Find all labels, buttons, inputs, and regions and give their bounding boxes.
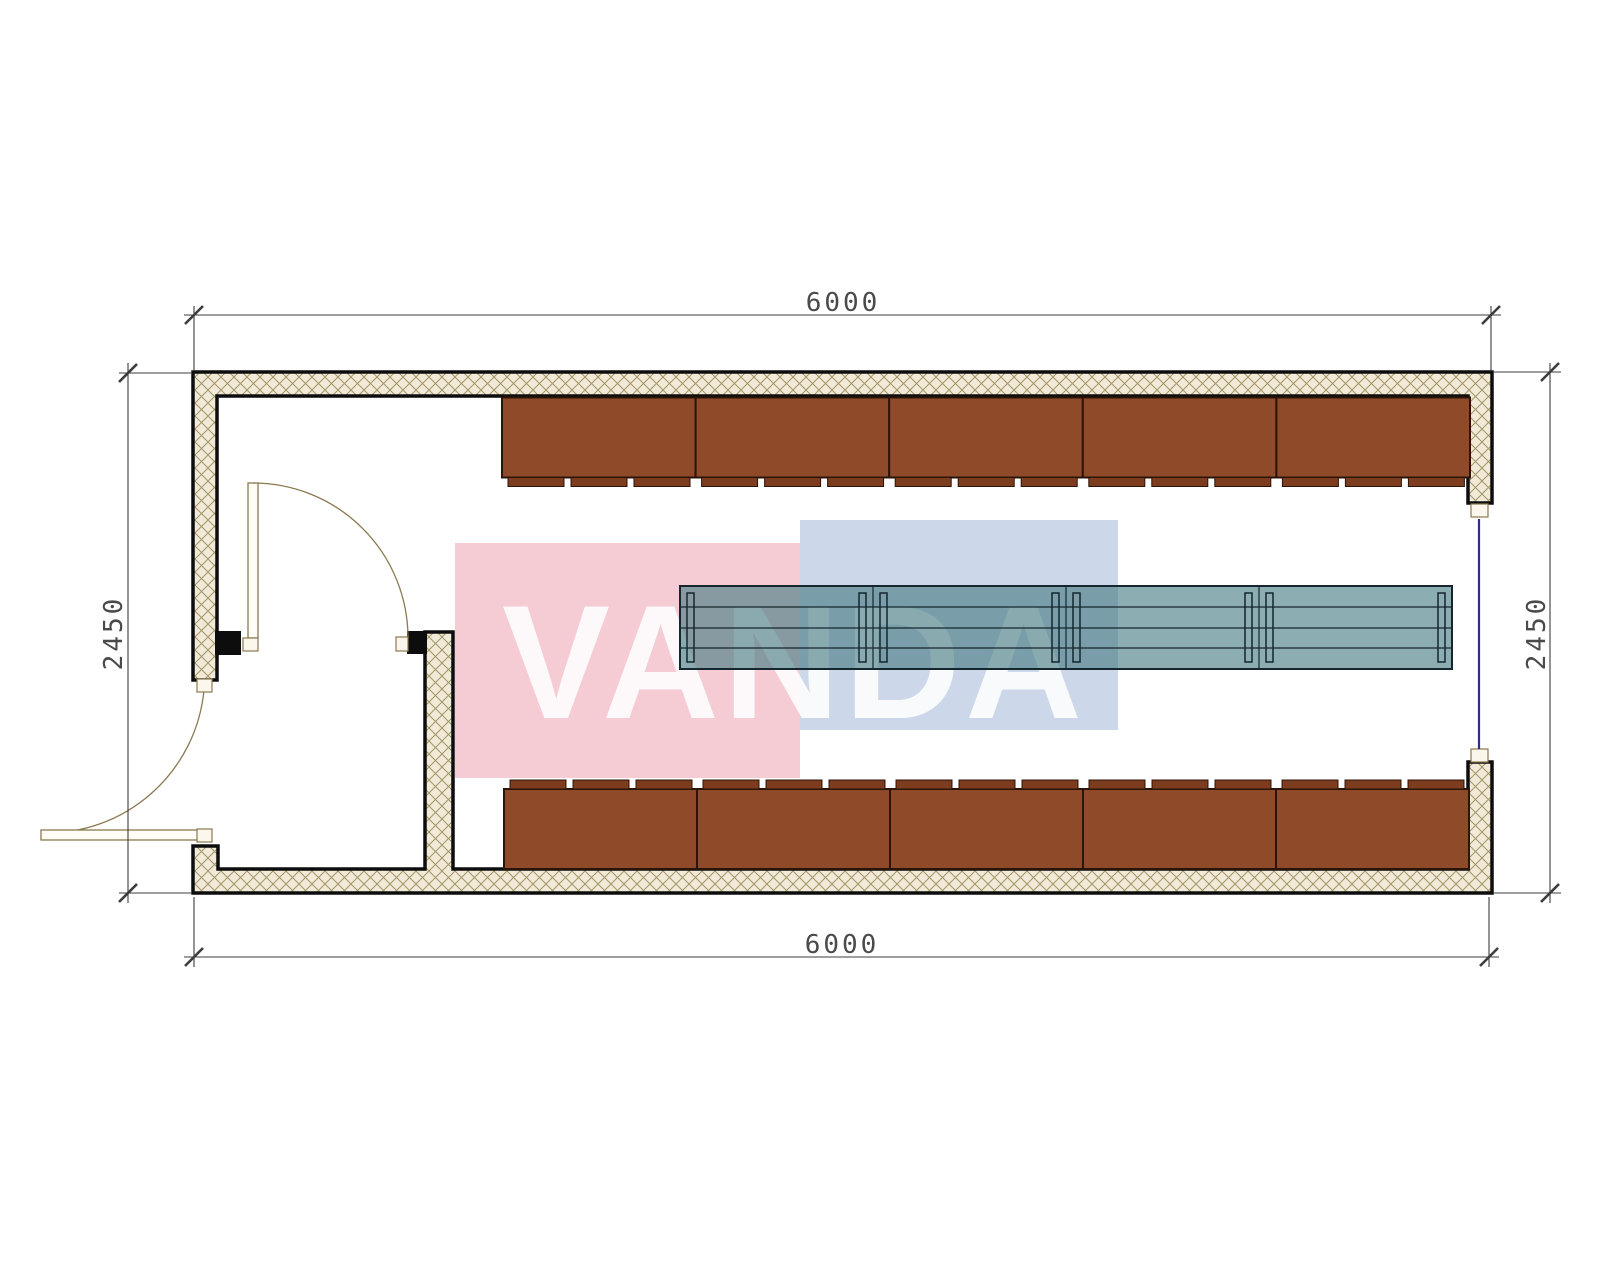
exterior-door-hinge-jamb [197, 829, 212, 842]
wardrobe-door-tab [702, 478, 758, 487]
door-jamb-stub-left-wall [215, 631, 241, 655]
wardrobe-unit [502, 398, 696, 478]
wardrobe-door-tab [1408, 780, 1464, 789]
wardrobe-door-tab [573, 780, 629, 789]
wardrobe-unit [1276, 789, 1469, 869]
wardrobe-door-tab [1215, 780, 1271, 789]
wardrobe-door-tab [1089, 478, 1145, 487]
wardrobe-door-tab [508, 478, 564, 487]
wardrobe-unit [696, 398, 890, 478]
wardrobe-door-tab [571, 478, 627, 487]
floor-plan-canvas: VANDA 6000 [0, 0, 1600, 1280]
dimension-label-left: 2450 [99, 596, 129, 671]
exterior-door-swing-arc [42, 690, 204, 833]
wardrobe-door-tab [1215, 478, 1271, 487]
interior-door-leaf [248, 483, 258, 638]
dimension-label-bottom: 6000 [805, 930, 880, 960]
wardrobe-door-tab [1022, 780, 1078, 789]
table [680, 586, 1452, 669]
wardrobe-door-tab [1345, 478, 1401, 487]
wardrobe-door-tab [703, 780, 759, 789]
dimension-label-right: 2450 [1522, 596, 1552, 671]
wardrobe-door-tab [634, 478, 690, 487]
wardrobe-door-tab [1152, 478, 1208, 487]
wardrobe-unit [1083, 789, 1276, 869]
dimension-left: 2450 [99, 363, 191, 903]
wardrobe-door-tab [958, 478, 1014, 487]
right-opening-bottom-jamb [1471, 749, 1488, 762]
wardrobe-row-top [502, 398, 1470, 487]
interior-door-hinge-jamb [243, 638, 258, 651]
wardrobe-unit [1083, 398, 1277, 478]
interior-door-swing-arc [253, 483, 408, 638]
wardrobe-unit [890, 789, 1083, 869]
wardrobe-door-tab [1152, 780, 1208, 789]
wardrobe-door-tab [1021, 478, 1077, 487]
wardrobe-door-tab [829, 780, 885, 789]
dimension-bottom: 6000 [184, 897, 1499, 967]
wardrobe-unit [504, 789, 697, 869]
wardrobe-door-tab [1089, 780, 1145, 789]
wardrobe-door-tab [510, 780, 566, 789]
wardrobe-row-bottom [504, 780, 1469, 869]
interior-door-strike-jamb [396, 637, 408, 651]
wardrobe-door-tab [1408, 478, 1464, 487]
wardrobe-door-tab [896, 780, 952, 789]
wardrobe-unit [697, 789, 890, 869]
wardrobe-door-tab [895, 478, 951, 487]
wardrobe-door-tab [959, 780, 1015, 789]
door-jamb-stub-partition [407, 631, 427, 654]
dimension-top: 6000 [184, 288, 1501, 371]
wardrobe-door-tab [636, 780, 692, 789]
right-opening-top-jamb [1471, 504, 1488, 517]
door-jamb-left-wall-end [197, 679, 212, 692]
wardrobe-door-tab [828, 478, 884, 487]
wardrobe-door-tab [766, 780, 822, 789]
wardrobe-door-tab [1282, 478, 1338, 487]
dimension-label-top: 6000 [806, 288, 881, 318]
dimension-right: 2450 [1493, 363, 1561, 903]
wardrobe-unit [889, 398, 1083, 478]
exterior-door-leaf [41, 830, 206, 840]
wardrobe-door-tab [1282, 780, 1338, 789]
wardrobe-unit [1276, 398, 1470, 478]
wardrobe-door-tab [1345, 780, 1401, 789]
wardrobe-door-tab [765, 478, 821, 487]
